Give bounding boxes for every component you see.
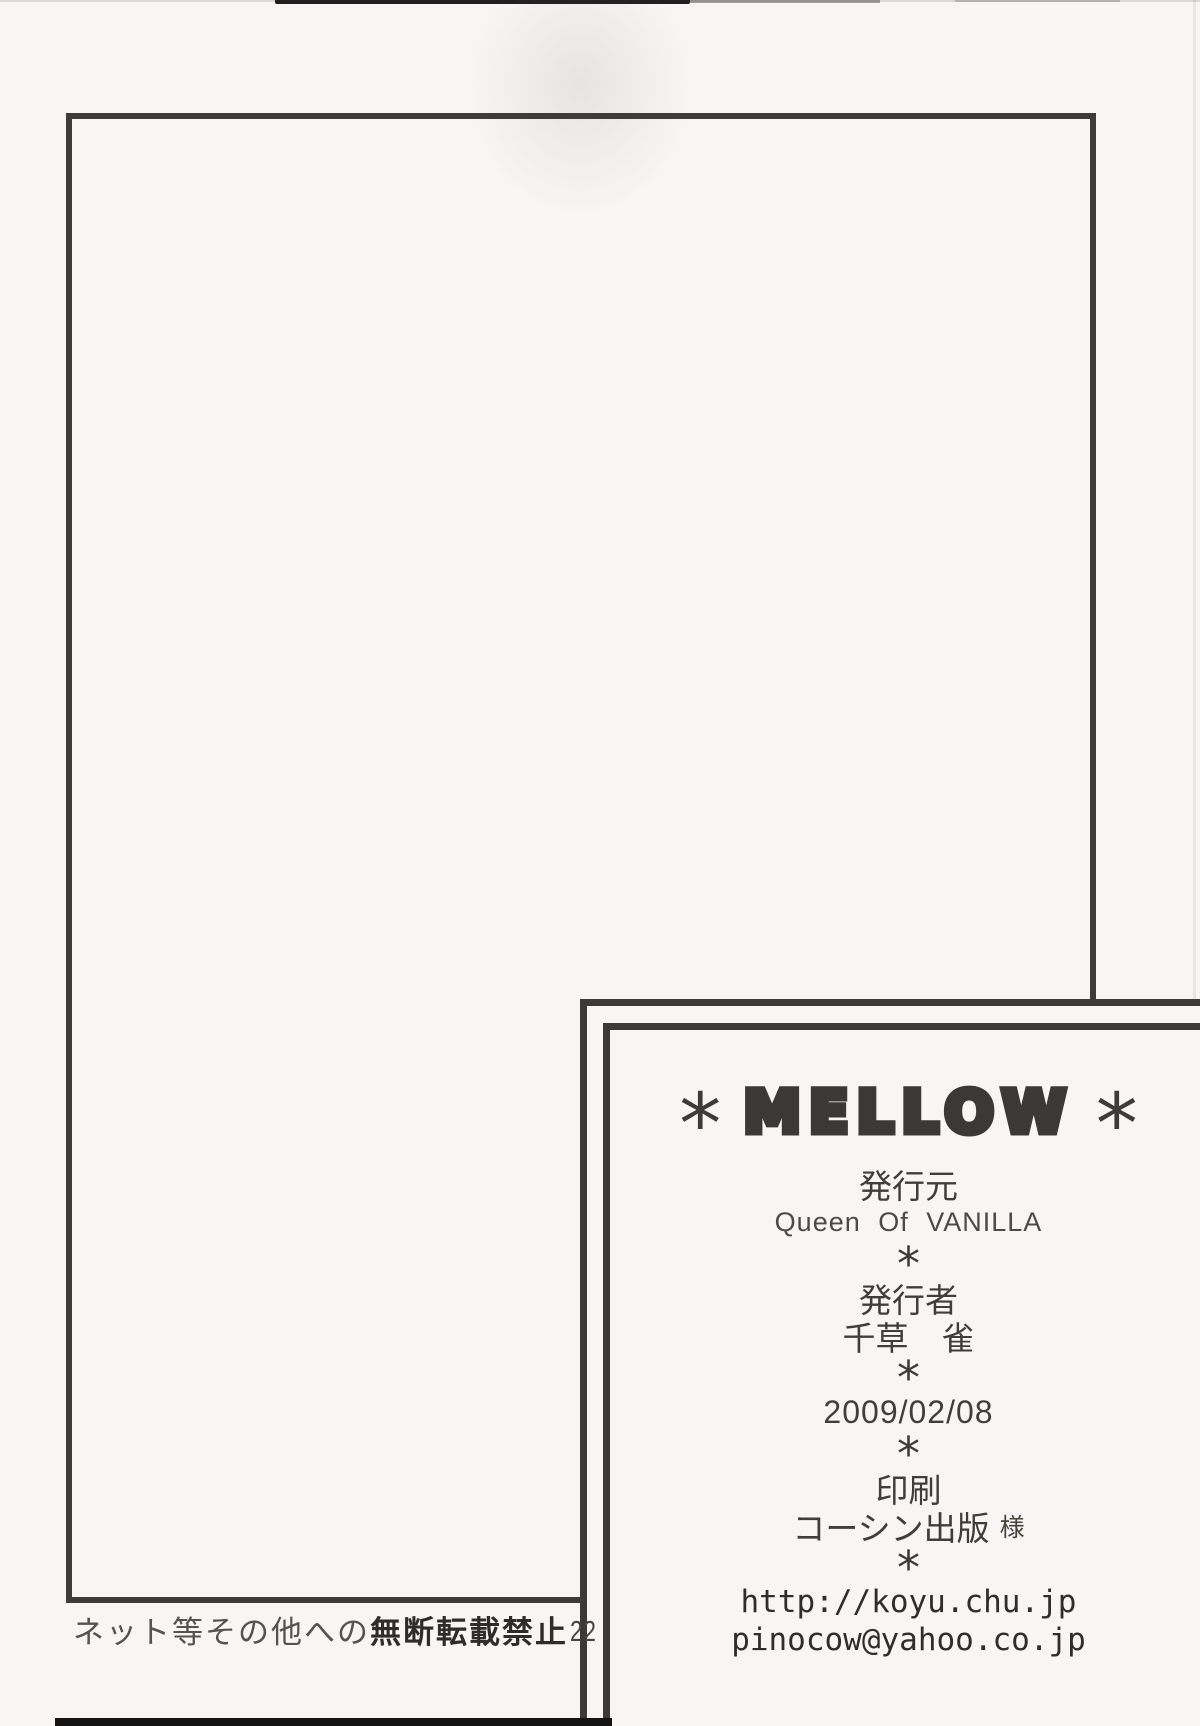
disclaimer-text: ネット等その他への [73, 1607, 370, 1652]
scan-edge-top-right [955, 0, 1120, 2]
asterisk-icon: * [897, 1549, 920, 1587]
separator-asterisk-2: * [617, 1355, 1200, 1393]
asterisk-icon: * [897, 1435, 920, 1473]
footer-disclaimer: ネット等その他への無断転載禁止 [73, 1610, 568, 1648]
colophon-inner-border: * MELLOW * 発行元 Queen Of VANILLA * 発行者 千草… [603, 1023, 1200, 1726]
page-number: 22 [570, 1616, 597, 1649]
printer-name: コーシン出版 様 [617, 1507, 1200, 1545]
printer-honorific-text: 様 [1000, 1508, 1025, 1544]
contact-email-text: pinocow@yahoo.co.jp [731, 1622, 1086, 1658]
contact-email: pinocow@yahoo.co.jp [617, 1621, 1200, 1659]
title-row: * MELLOW * [617, 1079, 1200, 1147]
asterisk-icon: * [897, 1245, 920, 1283]
publisher-name: Queen Of VANILLA [617, 1203, 1200, 1241]
disclaimer-text-emphasis: 無断転載禁止 [370, 1607, 568, 1652]
separator-asterisk-4: * [617, 1545, 1200, 1583]
publisher-name-text: Queen Of VANILLA [775, 1207, 1043, 1238]
colophon-box: * MELLOW * 発行元 Queen Of VANILLA * 発行者 千草… [580, 999, 1200, 1726]
separator-asterisk-1: * [617, 1241, 1200, 1279]
scan-edge-bottom [55, 1718, 612, 1726]
scanned-page: ネット等その他への無断転載禁止 22 * MELLOW * 発行元 Queen … [0, 0, 1200, 1726]
asterisk-icon: * [897, 1359, 920, 1397]
separator-asterisk-3: * [617, 1431, 1200, 1469]
title-asterisk-right-icon: * [1096, 1091, 1138, 1157]
printer-name-text: コーシン出版 [792, 1502, 989, 1550]
publisher-label-text: 発行元 [859, 1160, 958, 1208]
author-name: 千草 雀 [617, 1317, 1200, 1355]
colophon-content: * MELLOW * 発行元 Queen Of VANILLA * 発行者 千草… [617, 1037, 1200, 1659]
title-logo: MELLOW [743, 1079, 1073, 1145]
title-asterisk-left-icon: * [679, 1091, 721, 1157]
